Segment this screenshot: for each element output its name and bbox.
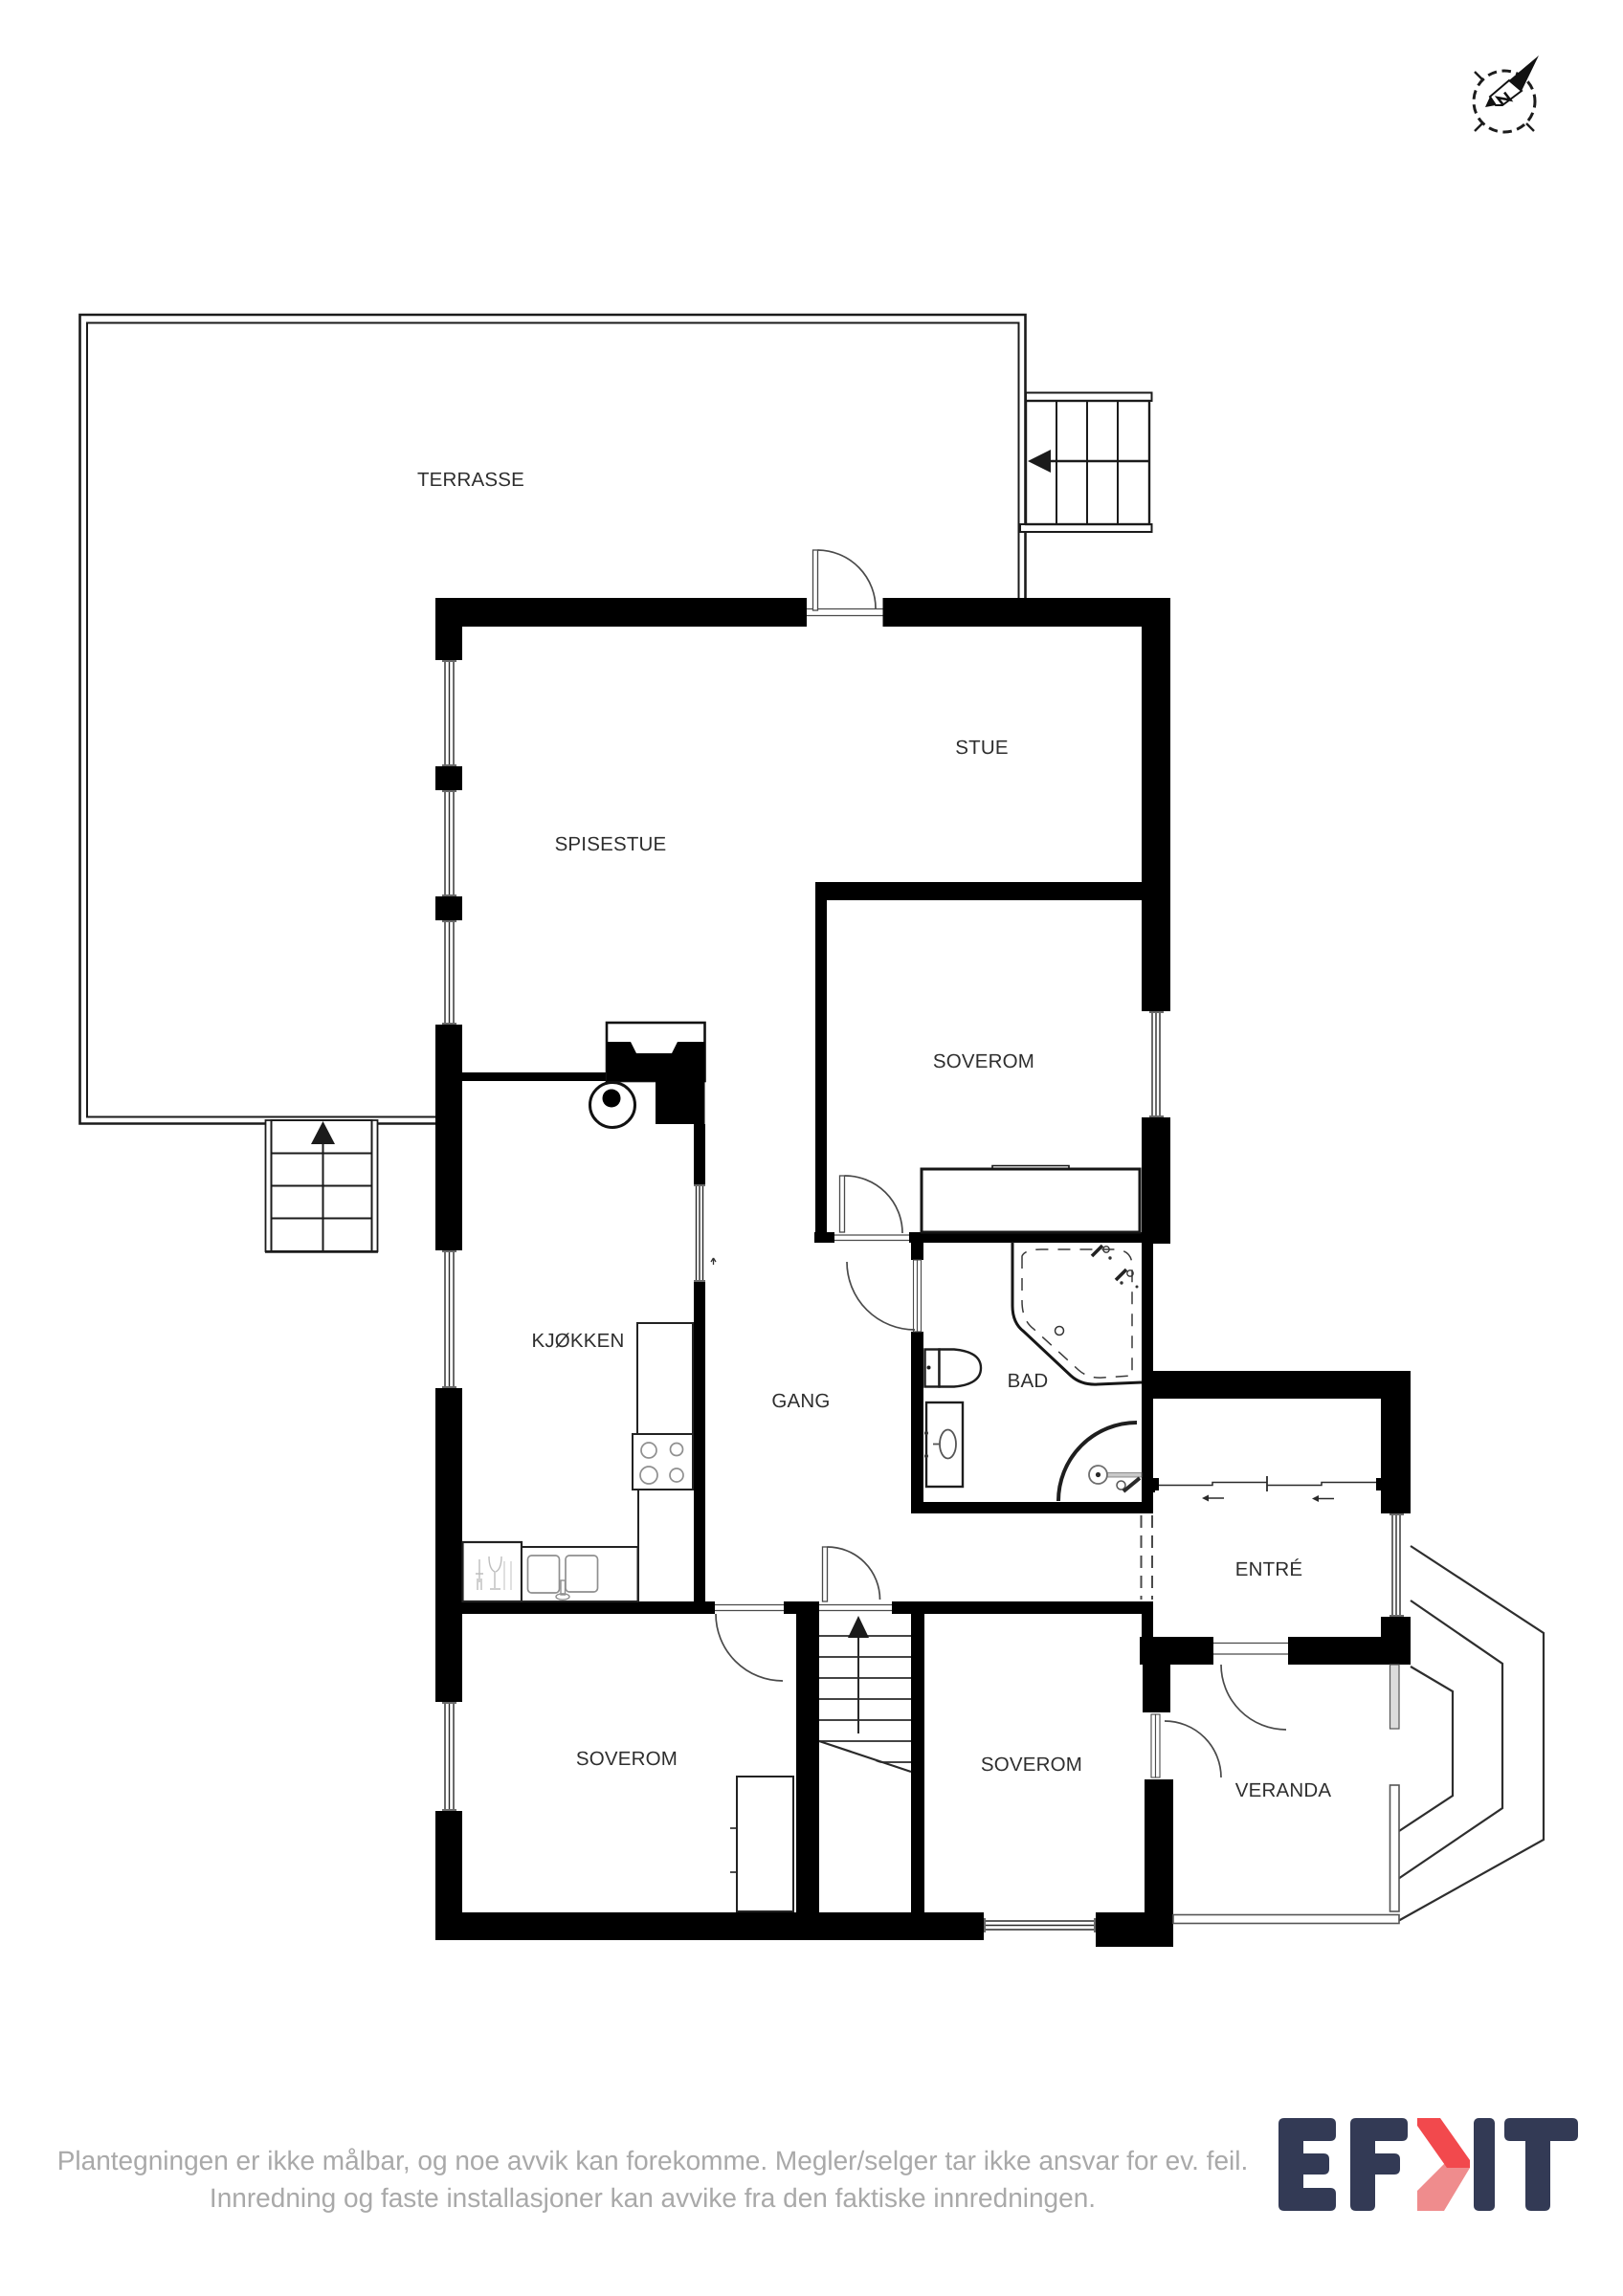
- svg-text:SOVEROM: SOVEROM: [933, 1050, 1034, 1072]
- svg-text:ENTRÉ: ENTRÉ: [1235, 1558, 1302, 1580]
- svg-text:Plantegningen er ikke målbar,: Plantegningen er ikke målbar, og noe avv…: [57, 2146, 1249, 2175]
- svg-text:SPISESTUE: SPISESTUE: [555, 833, 667, 855]
- svg-text:STUE: STUE: [955, 737, 1008, 759]
- svg-text:KJØKKEN: KJØKKEN: [531, 1330, 624, 1352]
- svg-text:VERANDA: VERANDA: [1235, 1779, 1332, 1801]
- svg-text:Innredning og faste installasj: Innredning og faste installasjoner kan a…: [210, 2183, 1096, 2213]
- svg-text:TERRASSE: TERRASSE: [417, 469, 524, 491]
- svg-text:GANG: GANG: [771, 1390, 830, 1412]
- svg-text:SOVEROM: SOVEROM: [576, 1748, 678, 1770]
- svg-text:BAD: BAD: [1008, 1370, 1049, 1392]
- svg-text:SOVEROM: SOVEROM: [981, 1754, 1082, 1776]
